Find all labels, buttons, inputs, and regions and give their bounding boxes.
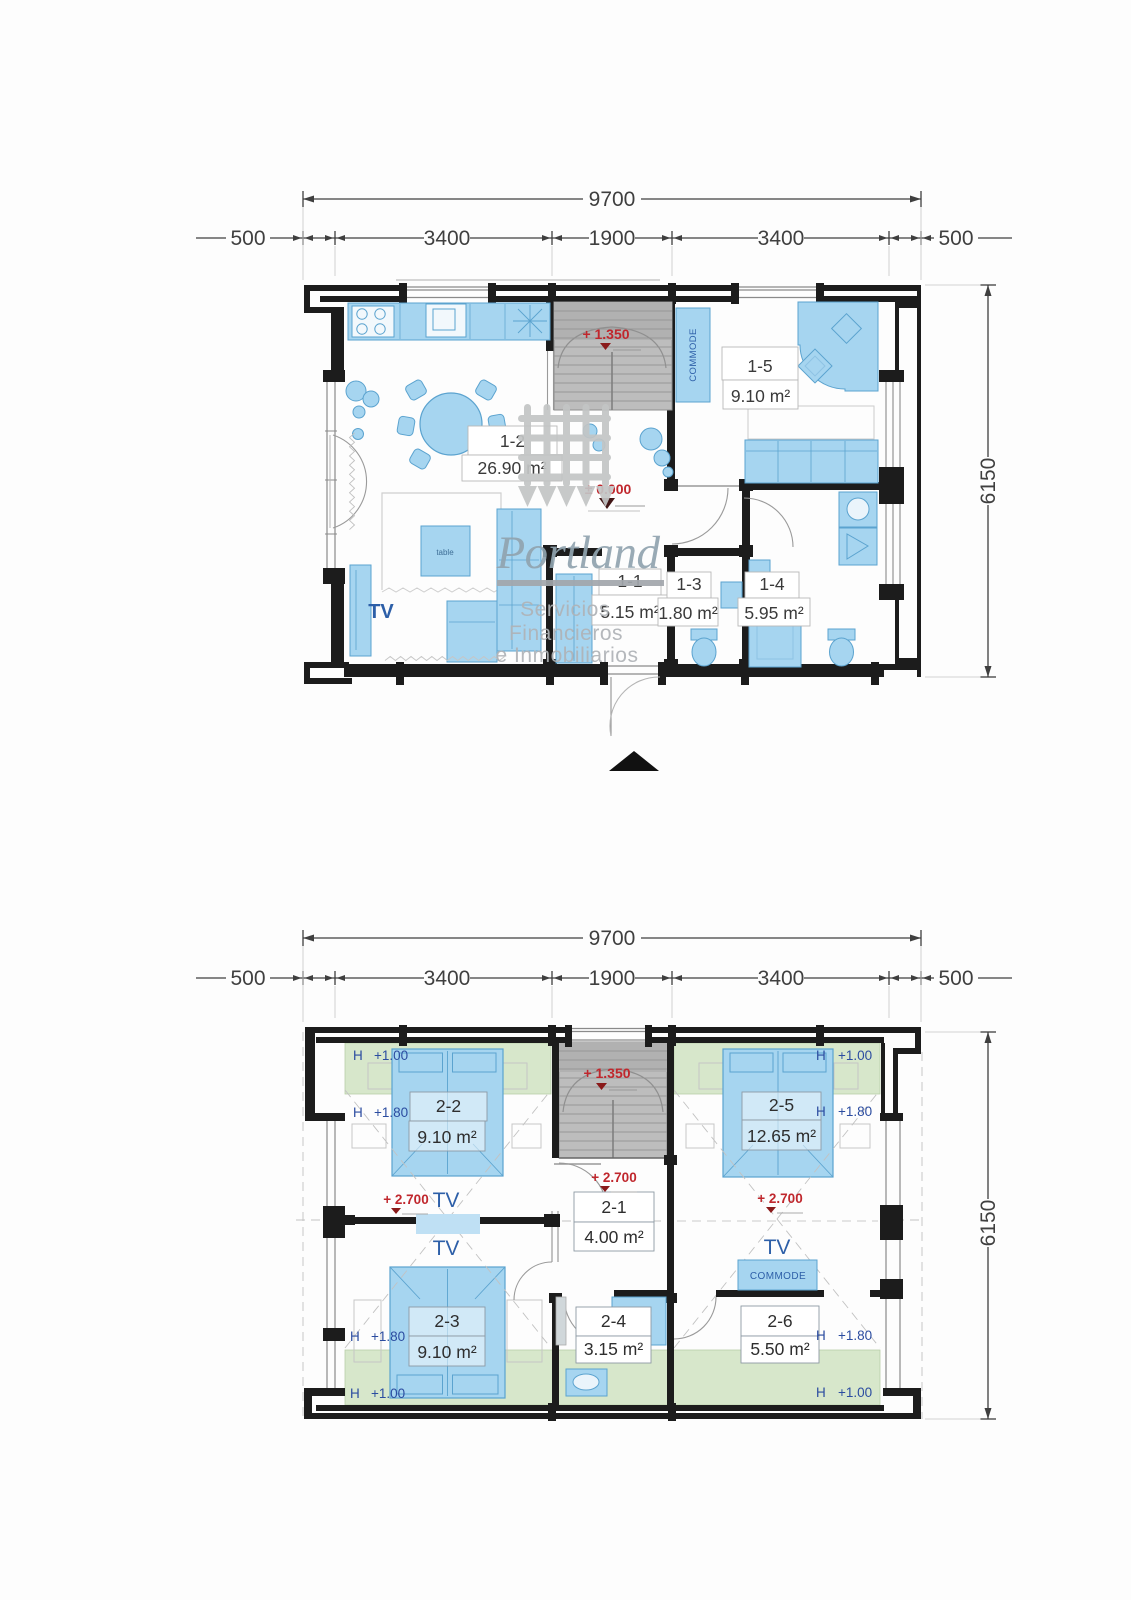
svg-text:Portland: Portland	[495, 527, 660, 579]
svg-text:2-3: 2-3	[434, 1311, 459, 1331]
svg-text:+1.80: +1.80	[374, 1105, 408, 1120]
svg-text:3400: 3400	[424, 227, 471, 250]
svg-text:9.10 m²: 9.10 m²	[731, 386, 790, 406]
svg-text:500: 500	[230, 227, 265, 250]
svg-text:TV: TV	[368, 601, 394, 623]
svg-text:1.80 m²: 1.80 m²	[658, 603, 717, 623]
svg-text:1900: 1900	[589, 967, 636, 990]
svg-text:2-2: 2-2	[436, 1096, 461, 1116]
svg-text:TV: TV	[433, 1189, 460, 1212]
svg-text:1900: 1900	[589, 227, 636, 250]
svg-text:9700: 9700	[589, 188, 636, 211]
svg-text:+1.00: +1.00	[374, 1048, 408, 1063]
svg-text:+1.80: +1.80	[838, 1328, 872, 1343]
svg-text:3400: 3400	[758, 967, 805, 990]
svg-text:12.65 m²: 12.65 m²	[747, 1126, 816, 1146]
svg-text:+ 2.700: + 2.700	[591, 1170, 636, 1185]
svg-text:5.50 m²: 5.50 m²	[750, 1339, 809, 1359]
svg-text:5.95 m²: 5.95 m²	[744, 603, 803, 623]
svg-text:+1.80: +1.80	[838, 1104, 872, 1119]
svg-text:H: H	[353, 1105, 363, 1120]
svg-text:H: H	[816, 1328, 826, 1343]
svg-text:1-4: 1-4	[759, 574, 785, 594]
svg-text:COMMODE: COMMODE	[688, 328, 699, 381]
svg-text:4.00 m²: 4.00 m²	[584, 1227, 643, 1247]
svg-text:500: 500	[938, 967, 973, 990]
svg-text:COMMODE: COMMODE	[750, 1271, 806, 1282]
svg-text:H: H	[816, 1104, 826, 1119]
svg-text:+ 2.700: + 2.700	[757, 1191, 802, 1206]
svg-text:TV: TV	[433, 1237, 460, 1260]
svg-text:2-5: 2-5	[769, 1095, 794, 1115]
svg-text:2-4: 2-4	[601, 1311, 627, 1331]
svg-text:TV: TV	[764, 1236, 791, 1259]
svg-text:Financieros: Financieros	[509, 622, 623, 645]
svg-text:+1.80: +1.80	[371, 1329, 405, 1344]
svg-text:+ 2.700: + 2.700	[383, 1192, 428, 1207]
svg-text:1-5: 1-5	[747, 356, 772, 376]
svg-text:H: H	[816, 1385, 826, 1400]
svg-text:500: 500	[938, 227, 973, 250]
svg-text:e Inmobiliarios: e Inmobiliarios	[496, 644, 639, 667]
svg-text:H: H	[350, 1329, 360, 1344]
svg-text:9.10 m²: 9.10 m²	[417, 1342, 476, 1362]
svg-text:+1.00: +1.00	[838, 1048, 872, 1063]
svg-text:1-3: 1-3	[676, 574, 701, 594]
svg-text:500: 500	[230, 967, 265, 990]
svg-text:9700: 9700	[589, 927, 636, 950]
svg-text:+ 1.350: + 1.350	[582, 326, 629, 342]
svg-text:H: H	[353, 1048, 363, 1063]
svg-text:table: table	[436, 548, 454, 557]
svg-text:3400: 3400	[758, 227, 805, 250]
svg-text:Servicios: Servicios	[520, 598, 610, 621]
svg-text:H: H	[350, 1386, 360, 1401]
svg-text:+1.00: +1.00	[371, 1386, 405, 1401]
svg-text:+ 1.350: + 1.350	[583, 1065, 630, 1081]
svg-text:6150: 6150	[977, 458, 1000, 505]
svg-text:3400: 3400	[424, 967, 471, 990]
svg-text:9.10 m²: 9.10 m²	[417, 1127, 476, 1147]
svg-text:2-1: 2-1	[601, 1197, 626, 1217]
svg-text:H: H	[816, 1048, 826, 1063]
svg-text:6150: 6150	[977, 1200, 1000, 1247]
svg-text:2-6: 2-6	[767, 1311, 792, 1331]
svg-text:+1.00: +1.00	[838, 1385, 872, 1400]
svg-text:3.15 m²: 3.15 m²	[584, 1339, 643, 1359]
